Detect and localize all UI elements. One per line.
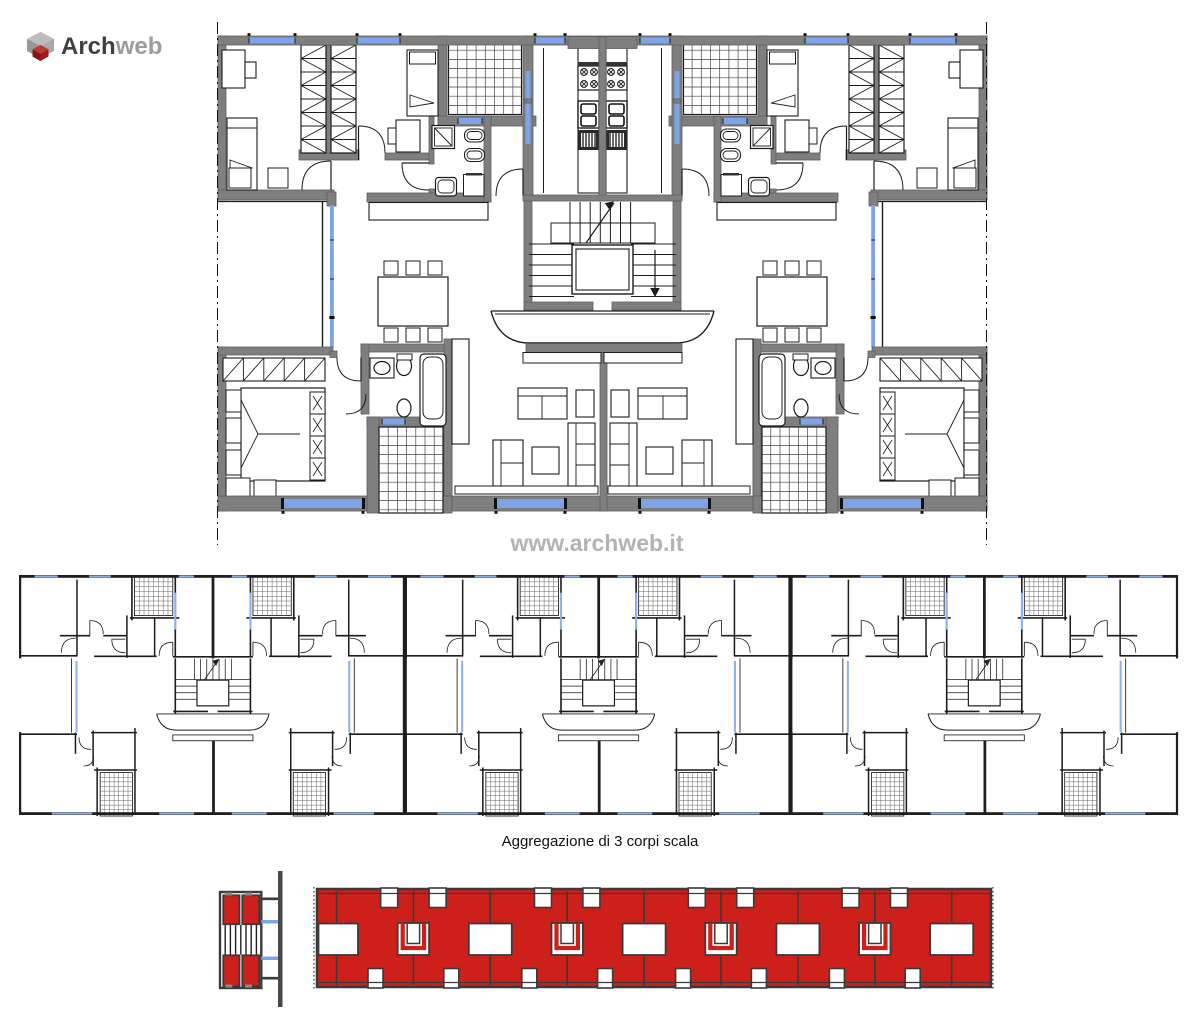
svg-text:Aggregazione di 3 corpi scala: Aggregazione di 3 corpi scala	[502, 833, 699, 850]
svg-text:Archweb: Archweb	[61, 33, 162, 60]
svg-text:www.archweb.it: www.archweb.it	[510, 530, 684, 556]
